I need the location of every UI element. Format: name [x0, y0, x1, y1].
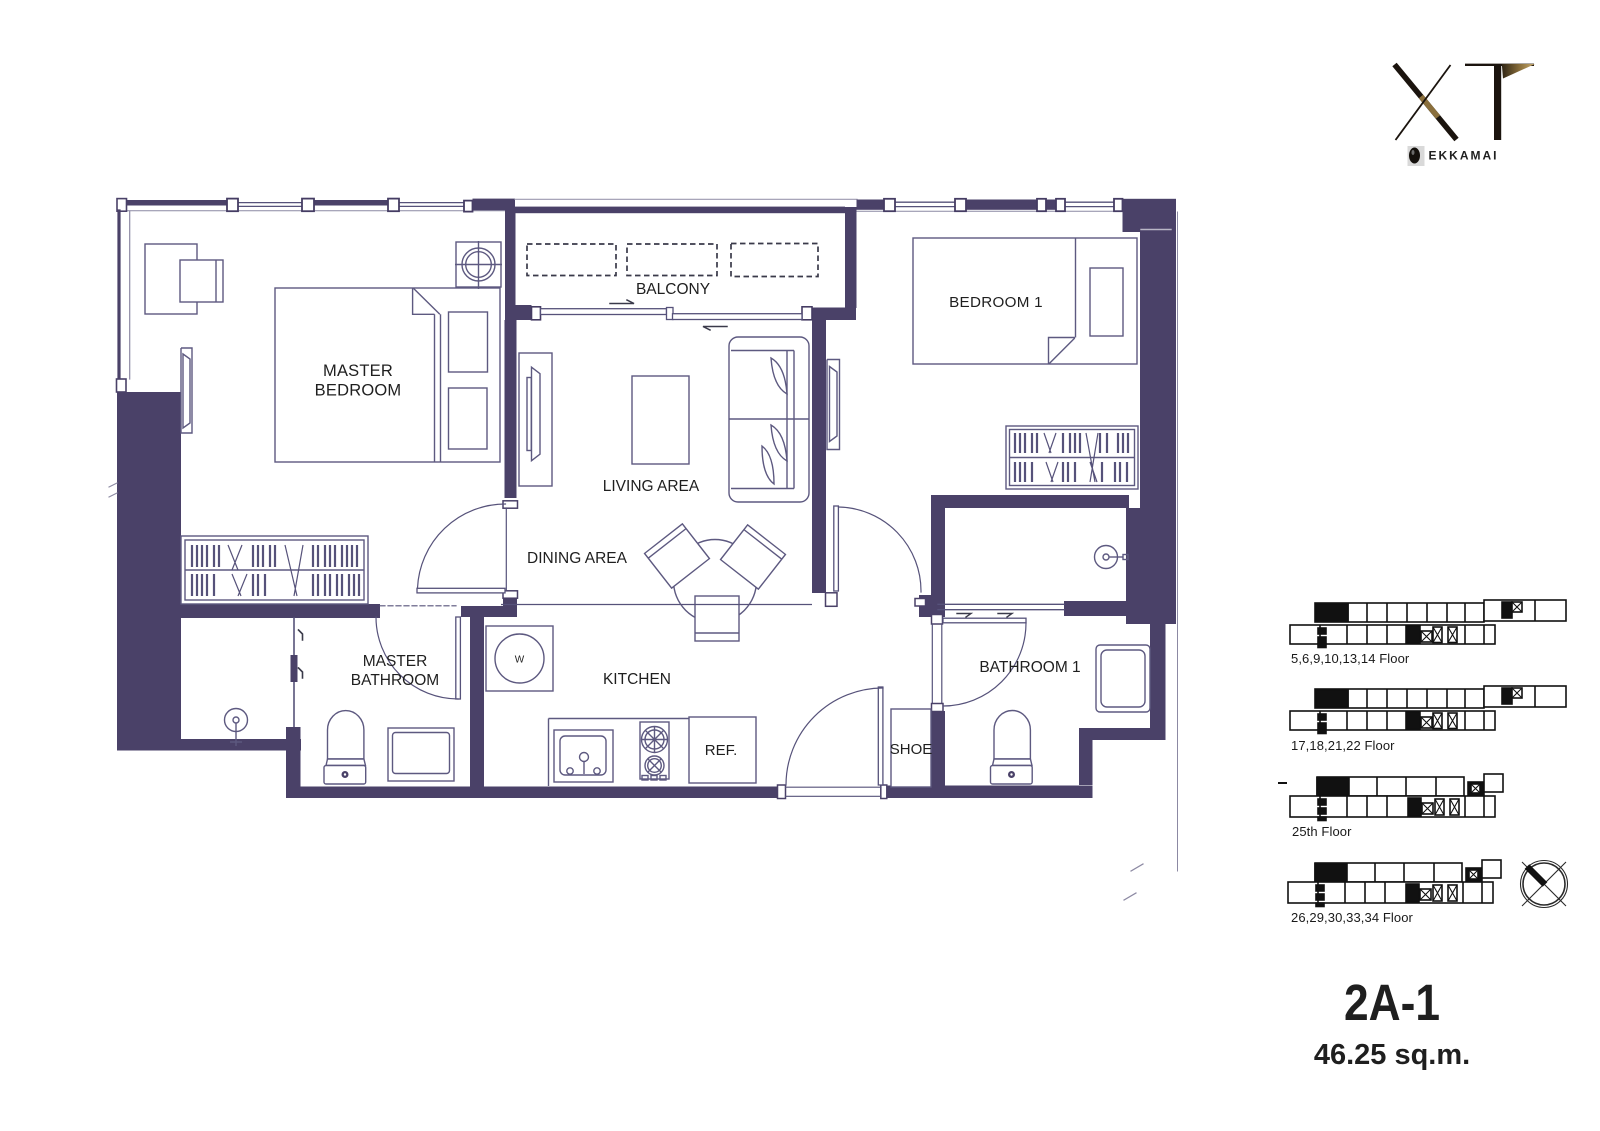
svg-text:MASTER: MASTER: [363, 653, 428, 670]
svg-text:EKKAMAI: EKKAMAI: [1429, 149, 1499, 163]
svg-text:SHOE: SHOE: [890, 741, 933, 758]
svg-text:BATHROOM: BATHROOM: [351, 672, 439, 689]
svg-text:26,29,30,33,34 Floor: 26,29,30,33,34 Floor: [1291, 910, 1414, 925]
svg-text:25th Floor: 25th Floor: [1292, 824, 1352, 839]
svg-text:BATHROOM 1: BATHROOM 1: [979, 659, 1080, 676]
svg-text:46.25 sq.m.: 46.25 sq.m.: [1314, 1039, 1470, 1071]
svg-text:LIVING AREA: LIVING AREA: [603, 478, 700, 495]
svg-text:BALCONY: BALCONY: [636, 281, 710, 298]
svg-text:2A-1: 2A-1: [1344, 974, 1440, 1031]
svg-text:DINING AREA: DINING AREA: [527, 550, 628, 567]
svg-text:17,18,21,22 Floor: 17,18,21,22 Floor: [1291, 738, 1395, 753]
svg-text:KITCHEN: KITCHEN: [603, 671, 671, 688]
svg-text:MASTER: MASTER: [323, 362, 393, 380]
svg-text:BEDROOM: BEDROOM: [315, 382, 402, 400]
svg-text:5,6,9,10,13,14 Floor: 5,6,9,10,13,14 Floor: [1291, 651, 1410, 666]
svg-text:BEDROOM 1: BEDROOM 1: [949, 294, 1043, 311]
svg-text:W: W: [515, 655, 525, 666]
svg-text:REF.: REF.: [705, 742, 738, 759]
